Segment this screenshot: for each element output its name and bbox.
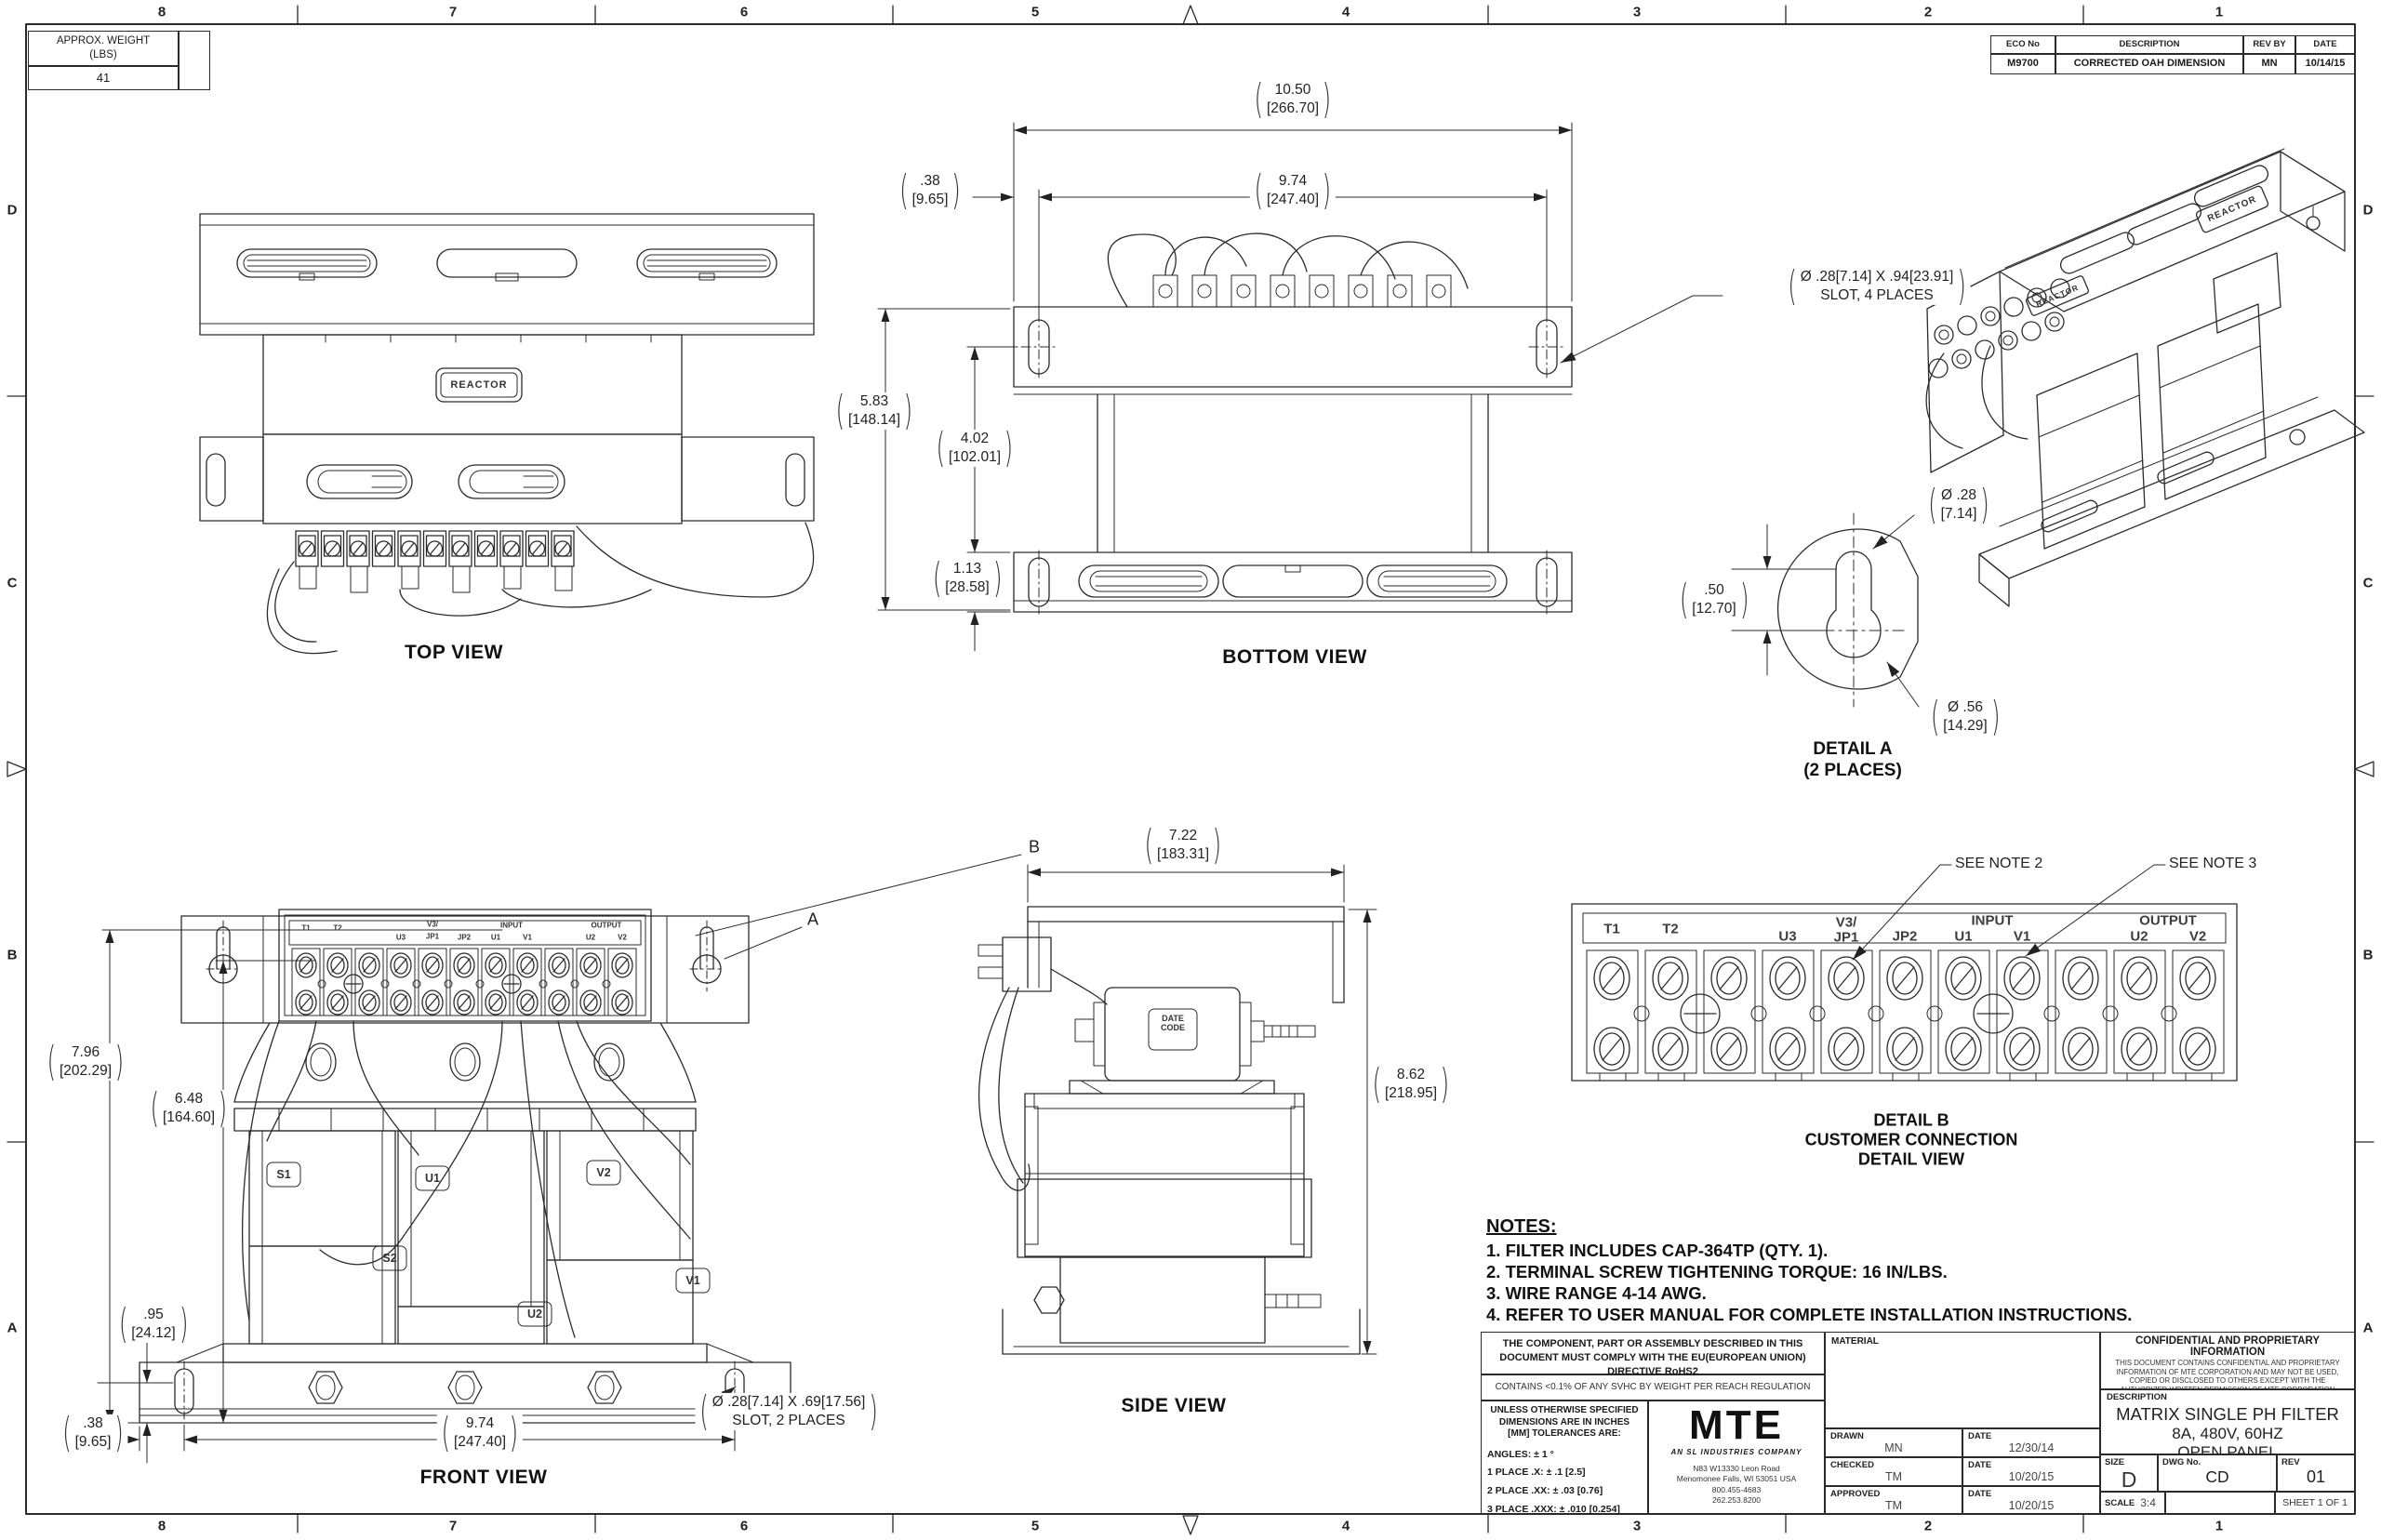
zone-bottom-5: 5 xyxy=(1031,1519,1039,1534)
zone-left-c: C xyxy=(7,576,18,591)
rohs-statement: THE COMPONENT, PART OR ASSEMBLY DESCRIBE… xyxy=(1481,1332,1825,1374)
bottom-view-label: BOTTOM VIEW xyxy=(1222,646,1367,669)
zone-top-7: 7 xyxy=(449,5,457,20)
material-cell: MATERIAL xyxy=(1825,1332,2100,1428)
mte-addr-2: Menomonee Falls, WI 53051 USA xyxy=(1649,1474,1824,1484)
eco-header-revby: REV BY xyxy=(2243,35,2295,54)
zone-left-a: A xyxy=(7,1321,18,1336)
zone-top-3: 3 xyxy=(1633,5,1641,20)
term-b-output: OUTPUT xyxy=(2139,913,2197,929)
dim-foot-slot-span: 9.74[247.40] xyxy=(437,1414,523,1452)
size-cell: SIZE D xyxy=(2100,1454,2158,1492)
drawing-sheet: 8 7 6 5 4 3 2 1 8 7 6 5 4 3 2 1 D C B A … xyxy=(0,0,2381,1540)
eco-revby: MN xyxy=(2243,54,2295,74)
isometric-view-drawing xyxy=(1926,149,2364,606)
term-b-u3: U3 xyxy=(1778,929,1796,945)
zone-left-b: B xyxy=(7,948,18,963)
reach-statement: CONTAINS <0.1% OF ANY SVHC BY WEIGHT PER… xyxy=(1481,1374,1825,1401)
coil-label-s1: S1 xyxy=(276,1168,290,1181)
mte-addr-4: 262.253.8200 xyxy=(1649,1495,1824,1506)
callout-slot-4-places: Ø .28[7.14] X .94[23.91]SLOT, 4 PLACES xyxy=(1784,268,1971,305)
weight-title: APPROX. WEIGHT xyxy=(29,34,178,48)
title-block: THE COMPONENT, PART OR ASSEMBLY DESCRIBE… xyxy=(1481,1332,2355,1514)
zone-top-4: 4 xyxy=(1342,5,1350,20)
dim-side-height: 8.62[218.95] xyxy=(1368,1066,1454,1103)
detail-a-qty: (2 PLACES) xyxy=(1803,761,1902,781)
dim-height-to-keyhole: 7.96[202.29] xyxy=(43,1043,128,1081)
zone-right-d: D xyxy=(2363,203,2374,219)
dim-keyhole-large-dia: Ø .56[14.29] xyxy=(1926,698,2004,736)
dim-slot-to-base: 4.02[102.01] xyxy=(932,430,1018,467)
checked-date-cell: DATE 10/20/15 xyxy=(1962,1457,2100,1486)
eco-date: 10/14/15 xyxy=(2295,54,2355,74)
notes-block: NOTES: 1. FILTER INCLUDES CAP-364TP (QTY… xyxy=(1486,1216,2132,1326)
term-f-output: OUTPUT xyxy=(592,922,622,930)
top-view-drawing xyxy=(200,214,814,654)
coil-label-v1: V1 xyxy=(685,1274,699,1287)
note-1: 1. FILTER INCLUDES CAP-364TP (QTY. 1). xyxy=(1486,1241,2132,1262)
dim-edge-offset: .38[9.65] xyxy=(895,172,964,209)
callout-slot-2-places: Ø .28[7.14] X .69[17.56]SLOT, 2 PLACES xyxy=(696,1393,883,1430)
approved-date-value: 10/20/15 xyxy=(1968,1499,2095,1512)
detail-a-drawing xyxy=(1732,513,1919,707)
eco-table: ECO No DESCRIPTION REV BY DATE M9700 COR… xyxy=(1990,35,2355,74)
scale-spare-cell xyxy=(2165,1492,2275,1514)
front-view-drawing xyxy=(88,855,1021,1463)
rev-label: REV xyxy=(2281,1457,2350,1467)
mte-logo-sub: AN SL INDUSTRIES COMPANY xyxy=(1649,1448,1824,1456)
mte-logo: MTE xyxy=(1649,1405,1824,1446)
tolerance-1place: 1 PLACE .X: ± .1 [2.5] xyxy=(1487,1464,1642,1482)
top-view-label: TOP VIEW xyxy=(405,642,503,664)
eco-desc: CORRECTED OAH DIMENSION xyxy=(2055,54,2243,74)
term-b-jp1: JP1 xyxy=(1834,930,1859,946)
approved-cell: APPROVED TM xyxy=(1825,1486,1962,1514)
tolerance-header: UNLESS OTHERWISE SPECIFIED DIMENSIONS AR… xyxy=(1487,1405,1642,1440)
term-f-u2: U2 xyxy=(586,934,595,942)
checked-date-value: 10/20/15 xyxy=(1968,1470,2095,1483)
term-b-u1: U1 xyxy=(1954,929,1972,945)
zone-bottom-7: 7 xyxy=(449,1519,457,1534)
dim-overall-width: 10.50[266.70] xyxy=(1250,81,1336,118)
scale-cell: SCALE 3:4 xyxy=(2100,1492,2165,1514)
term-f-u3: U3 xyxy=(396,934,406,942)
dwg-no-cell: DWG No. CD MSP0008D xyxy=(2158,1454,2277,1492)
zone-bottom-3: 3 xyxy=(1633,1519,1641,1534)
term-f-t1: T1 xyxy=(301,924,310,933)
term-b-t1: T1 xyxy=(1603,922,1620,937)
dim-keyhole-small-dia: Ø .28[7.14] xyxy=(1923,486,1993,524)
note-2: 2. TERMINAL SCREW TIGHTENING TORQUE: 16 … xyxy=(1486,1262,2132,1283)
tolerance-3place: 3 PLACE .XXX: ± .010 [0.254] xyxy=(1487,1501,1642,1520)
approved-value: TM xyxy=(1830,1499,1957,1512)
dim-foot-edge-offset: .38[9.65] xyxy=(58,1414,127,1452)
eco-header-desc: DESCRIPTION xyxy=(2055,35,2243,54)
callout-a: A xyxy=(807,910,818,930)
eco-header-no: ECO No xyxy=(1990,35,2055,54)
eco-no: M9700 xyxy=(1990,54,2055,74)
rev-cell: REV 01 xyxy=(2277,1454,2355,1492)
weight-box-title: APPROX. WEIGHT (LBS) xyxy=(28,31,179,66)
tolerance-angles: ANGLES: ± 1 ° xyxy=(1487,1446,1642,1465)
description-line-1: MATRIX SINGLE PH FILTER xyxy=(2107,1404,2348,1425)
drawn-date-cell: DATE 12/30/14 xyxy=(1962,1428,2100,1457)
confidential-title: CONFIDENTIAL AND PROPRIETARY INFORMATION xyxy=(2108,1335,2347,1358)
coil-label-s2: S2 xyxy=(382,1252,396,1265)
date-code-label: DATE CODE xyxy=(1161,1015,1185,1033)
description-cell: DESCRIPTION MATRIX SINGLE PH FILTER 8A, … xyxy=(2100,1389,2355,1454)
term-f-v2: V2 xyxy=(618,934,627,942)
tolerance-block: UNLESS OTHERWISE SPECIFIED DIMENSIONS AR… xyxy=(1481,1401,1648,1514)
drawn-value: MN xyxy=(1830,1441,1957,1454)
drawn-cell: DRAWN MN xyxy=(1825,1428,1962,1457)
detail-b-sub1: CUSTOMER CONNECTION xyxy=(1805,1131,2018,1150)
coil-label-v2: V2 xyxy=(596,1166,610,1179)
detail-b-title: DETAIL B xyxy=(1873,1111,1949,1131)
zone-bottom-1: 1 xyxy=(2215,1519,2223,1534)
reactor-nameplate: REACTOR xyxy=(450,379,507,391)
weight-box-value: 41 xyxy=(28,66,179,90)
mte-addr-1: N83 W13330 Leon Road xyxy=(1649,1464,1824,1474)
zone-bottom-4: 4 xyxy=(1342,1519,1350,1534)
see-note-2: SEE NOTE 2 xyxy=(1955,856,2042,872)
mte-addr-3: 800.455-4683 xyxy=(1649,1485,1824,1495)
zone-right-a: A xyxy=(2363,1321,2374,1336)
dwg-no-label: DWG No. xyxy=(2162,1457,2272,1467)
zone-right-c: C xyxy=(2363,576,2374,591)
weight-box: APPROX. WEIGHT (LBS) 41 xyxy=(28,31,210,90)
scale-label: SCALE xyxy=(2105,1498,2135,1508)
note-3: 3. WIRE RANGE 4-14 AWG. xyxy=(1486,1283,2132,1305)
term-b-u2: U2 xyxy=(2130,929,2148,945)
coil-label-u2: U2 xyxy=(527,1308,542,1321)
term-b-input: INPUT xyxy=(1972,913,2014,929)
weight-box-spare xyxy=(179,31,210,90)
see-note-3: SEE NOTE 3 xyxy=(2169,856,2256,872)
zone-top-5: 5 xyxy=(1031,5,1039,20)
eco-header-date: DATE xyxy=(2295,35,2355,54)
dim-base-height: 1.13[28.58] xyxy=(928,560,1006,597)
size-value: D xyxy=(2105,1467,2153,1493)
date-code-line2: CODE xyxy=(1161,1024,1185,1033)
dim-slot-span: 9.74[247.40] xyxy=(1250,172,1336,209)
term-f-v1: V1 xyxy=(523,934,532,942)
term-b-v3: V3/ xyxy=(1836,915,1857,931)
drawn-date-value: 12/30/14 xyxy=(1968,1441,2095,1454)
dim-foot-slot-height: .95[24.12] xyxy=(114,1306,193,1343)
coil-label-u1: U1 xyxy=(425,1172,440,1185)
dim-side-width: 7.22[183.31] xyxy=(1140,827,1226,864)
term-b-t2: T2 xyxy=(1662,922,1679,937)
zone-right-b: B xyxy=(2363,948,2374,963)
checked-cell: CHECKED TM xyxy=(1825,1457,1962,1486)
checked-value: TM xyxy=(1830,1470,1957,1483)
detail-b-sub2: DETAIL VIEW xyxy=(1858,1150,1964,1170)
term-f-v3: V3/ xyxy=(427,921,438,929)
description-label: DESCRIPTION xyxy=(2107,1392,2348,1402)
rev-value: 01 xyxy=(2281,1467,2350,1487)
zone-top-6: 6 xyxy=(740,5,748,20)
drawn-date-label: DATE xyxy=(1968,1431,2095,1441)
detail-b-drawing xyxy=(1572,865,2237,1081)
zone-top-8: 8 xyxy=(158,5,166,20)
drawn-label: DRAWN xyxy=(1830,1431,1957,1441)
mte-logo-block: MTE AN SL INDUSTRIES COMPANY N83 W13330 … xyxy=(1648,1401,1825,1514)
approved-date-cell: DATE 10/20/15 xyxy=(1962,1486,2100,1514)
approved-label: APPROVED xyxy=(1830,1489,1957,1499)
note-4: 4. REFER TO USER MANUAL FOR COMPLETE INS… xyxy=(1486,1305,2132,1326)
description-line-2: 8A, 480V, 60HZ xyxy=(2107,1425,2348,1443)
weight-unit: (LBS) xyxy=(29,48,178,62)
term-f-input: INPUT xyxy=(500,922,523,930)
zone-bottom-2: 2 xyxy=(1924,1519,1932,1534)
confidential-cell: CONFIDENTIAL AND PROPRIETARY INFORMATION… xyxy=(2100,1332,2355,1389)
dim-depth-overall: 5.83[148.14] xyxy=(831,392,917,430)
zone-left-d: D xyxy=(7,203,18,219)
term-b-jp2: JP2 xyxy=(1893,929,1918,945)
checked-date-label: DATE xyxy=(1968,1460,2095,1470)
callout-b: B xyxy=(1029,838,1040,857)
detail-a-title: DETAIL A xyxy=(1813,739,1892,760)
dim-height-to-keyhole-2: 6.48[164.60] xyxy=(146,1090,232,1127)
zone-bottom-6: 6 xyxy=(740,1519,748,1534)
sheet-cell: SHEET 1 OF 1 xyxy=(2275,1492,2355,1514)
zone-top-1: 1 xyxy=(2215,5,2223,20)
term-f-jp1: JP1 xyxy=(426,933,439,941)
side-view-drawing xyxy=(978,865,1377,1354)
term-b-v2: V2 xyxy=(2189,929,2206,945)
scale-value: 3:4 xyxy=(2140,1496,2156,1509)
term-b-v1: V1 xyxy=(2014,929,2030,945)
term-f-jp2: JP2 xyxy=(458,934,471,942)
notes-title: NOTES: xyxy=(1486,1216,2132,1238)
size-label: SIZE xyxy=(2105,1457,2153,1467)
approved-date-label: DATE xyxy=(1968,1489,2095,1499)
zone-top-2: 2 xyxy=(1924,5,1932,20)
tolerance-2place: 2 PLACE .XX: ± .03 [0.76] xyxy=(1487,1482,1642,1501)
side-view-label: SIDE VIEW xyxy=(1121,1395,1226,1417)
term-f-u1: U1 xyxy=(491,934,500,942)
checked-label: CHECKED xyxy=(1830,1460,1957,1470)
dim-keyhole-height: .50[12.70] xyxy=(1675,581,1753,618)
term-f-t2: T2 xyxy=(333,924,341,933)
zone-bottom-8: 8 xyxy=(158,1519,166,1534)
front-view-label: FRONT VIEW xyxy=(420,1467,548,1489)
